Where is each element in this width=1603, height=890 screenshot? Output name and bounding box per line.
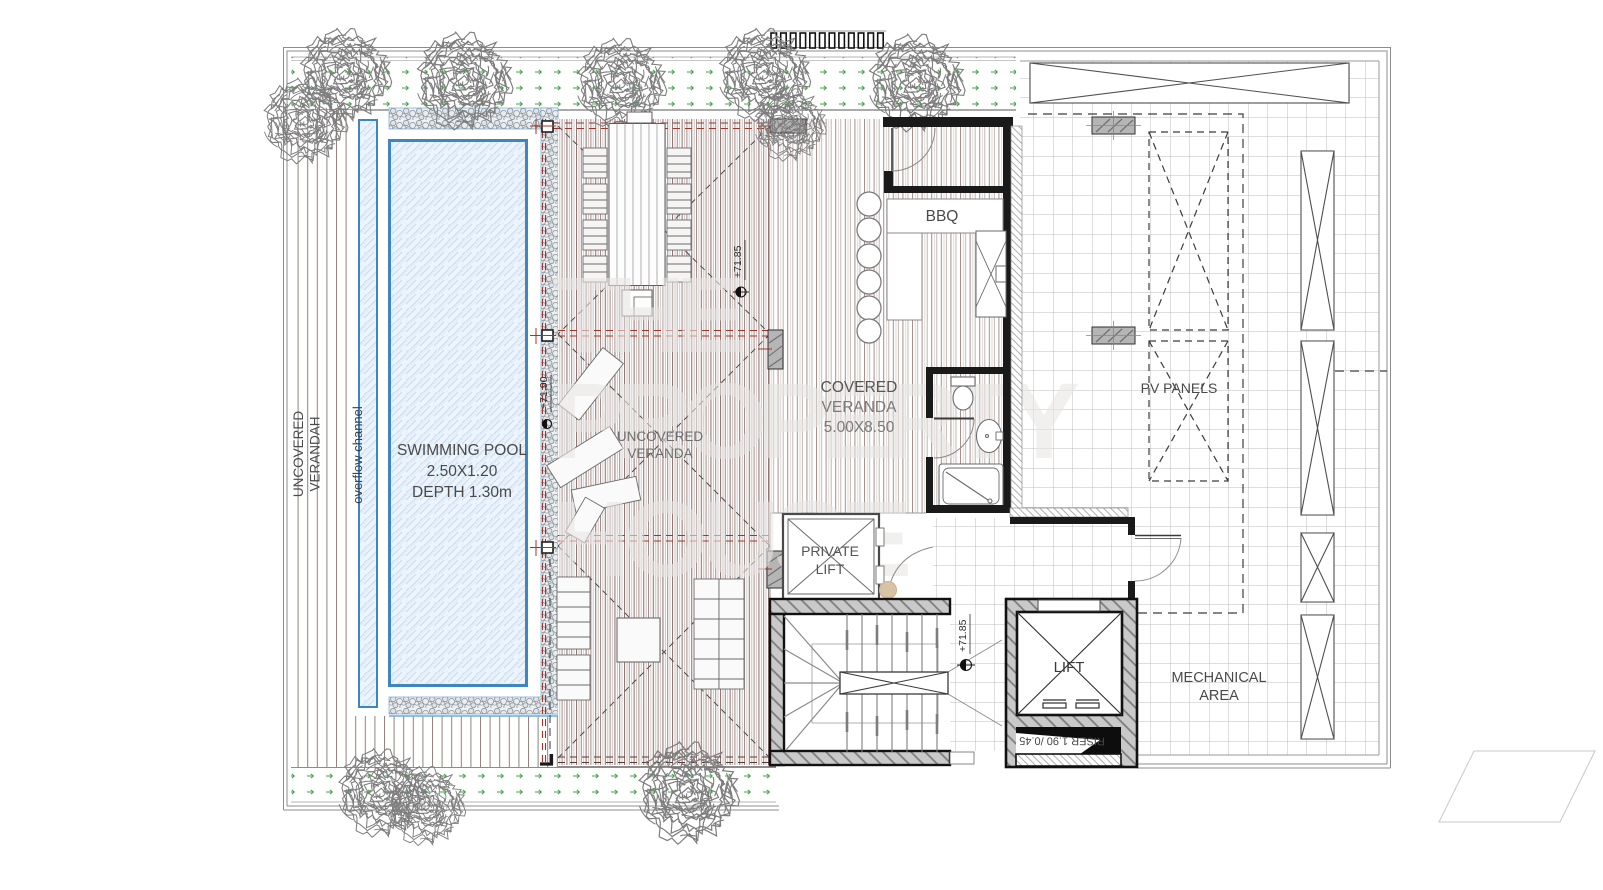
svg-text:BBQ: BBQ xyxy=(926,208,959,225)
svg-text:DEPTH 1.30m: DEPTH 1.30m xyxy=(412,484,512,501)
svg-text:COVERED: COVERED xyxy=(821,379,898,396)
svg-text:VERANDAH: VERANDAH xyxy=(308,416,323,491)
svg-text:UNCOVERED: UNCOVERED xyxy=(291,411,306,498)
svg-text:UNCOVERED: UNCOVERED xyxy=(617,429,704,444)
svg-text:THE: THE xyxy=(552,254,747,375)
svg-text:+71.90: +71.90 xyxy=(538,376,550,409)
svg-text:overflow channel: overflow channel xyxy=(350,406,365,504)
svg-text:VERANDA: VERANDA xyxy=(627,446,692,461)
svg-text:PRIVATE: PRIVATE xyxy=(801,543,859,559)
svg-text:MECHANICAL: MECHANICAL xyxy=(1171,670,1266,686)
svg-text:PROPERTY: PROPERTY xyxy=(552,360,1080,481)
svg-text:VERANDA: VERANDA xyxy=(822,399,898,416)
svg-text:RISER 1.90 /0.45: RISER 1.90 /0.45 xyxy=(1019,734,1105,747)
svg-text:PV PANELS: PV PANELS xyxy=(1141,380,1218,396)
svg-text:LIFT: LIFT xyxy=(816,561,845,577)
svg-text:SWIMMING POOL: SWIMMING POOL xyxy=(397,442,527,459)
svg-text:+71.85: +71.85 xyxy=(732,245,744,278)
svg-text:LIFT: LIFT xyxy=(1054,659,1085,676)
svg-text:+71.85: +71.85 xyxy=(957,619,969,652)
svg-text:AREA: AREA xyxy=(1199,688,1239,704)
svg-text:2.50X1.20: 2.50X1.20 xyxy=(427,463,498,480)
svg-text:5.00X8.50: 5.00X8.50 xyxy=(824,419,895,436)
